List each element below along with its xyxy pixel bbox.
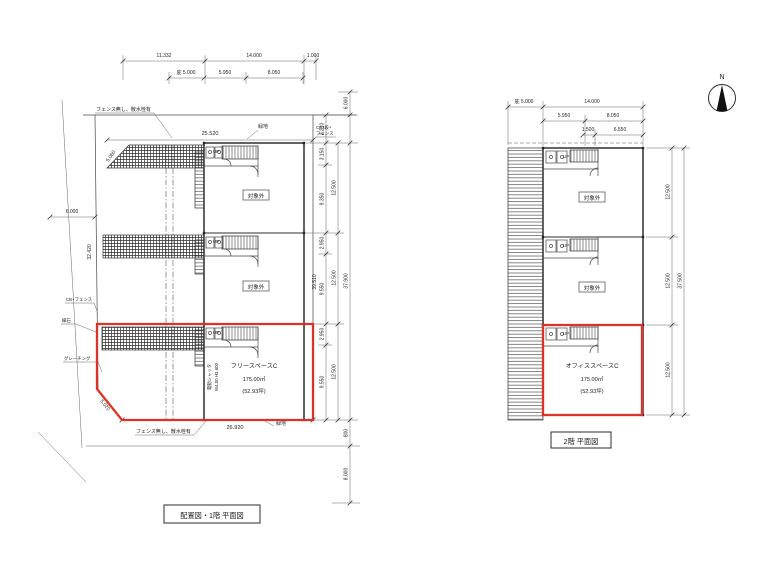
dim-label: 12.500 bbox=[332, 270, 338, 286]
shutter-opening-1 bbox=[195, 152, 204, 208]
stair-and-wc-block bbox=[543, 237, 598, 265]
stair-and-wc-block bbox=[543, 325, 598, 353]
column-marks bbox=[542, 147, 644, 416]
wall-length-label: 39.510 bbox=[312, 274, 318, 290]
excluded-room-label: 対象外 bbox=[584, 284, 601, 292]
plan1-caption-box: 配置図・1階 平面図 bbox=[164, 505, 260, 523]
balcony-strip-2f bbox=[508, 143, 643, 420]
site-south-dim-label: 26.920 bbox=[226, 425, 243, 431]
cb-fence-west-label: CB+フェンス bbox=[66, 297, 92, 303]
stair-up-label: UP bbox=[213, 149, 219, 154]
dim-label: 12.500 bbox=[666, 273, 672, 289]
dim-total-label: 37.900 bbox=[344, 273, 350, 289]
dims-east-2f: 12.500 12.500 12.500 37.500 bbox=[646, 146, 690, 418]
north-needle bbox=[717, 85, 728, 111]
dims-top-1f: 11.332 14.000 1.000 庇 5.000 5.950 8.050 bbox=[121, 53, 320, 84]
excluded-room-label: 対象外 bbox=[248, 192, 265, 200]
dim-label: 庇 5.000 bbox=[177, 69, 196, 76]
plan1-caption: 配置図・1階 平面図 bbox=[180, 511, 244, 520]
dim-label: 12.500 bbox=[666, 362, 672, 378]
dim-label: 6.550 bbox=[614, 127, 627, 133]
building-outline-2f bbox=[542, 147, 644, 416]
dim-label: 5.950 bbox=[558, 113, 571, 119]
excluded-room-label: 対象外 bbox=[248, 283, 265, 291]
unit-c-tsubo: (52.93坪) bbox=[242, 387, 265, 395]
north-arrow-icon: N bbox=[709, 72, 736, 112]
dim-label: 8.050 bbox=[268, 70, 281, 76]
dim-label: 800 bbox=[344, 429, 350, 438]
dim-label: 庇 5.000 bbox=[515, 98, 534, 105]
dim-label: 11.332 bbox=[157, 53, 172, 59]
dim-label: 12.500 bbox=[332, 180, 338, 196]
stair-up-label: UP bbox=[563, 154, 569, 159]
dim-label: 6.000 bbox=[344, 97, 350, 110]
stair-and-wc-block bbox=[204, 236, 258, 267]
stair-and-wc-block: UP bbox=[543, 148, 598, 176]
cb-fence-east-label: CB2段+ bbox=[316, 124, 332, 131]
dim-label: 6.000 bbox=[66, 209, 79, 215]
dim-total-label: 37.500 bbox=[678, 273, 684, 289]
dim-label: 5.950 bbox=[219, 70, 232, 76]
drawing-page: UP 対象外 対象外 フリースペースC 175.00㎡ (52.93坪) 電動シ… bbox=[0, 0, 760, 570]
unit-c-area: 175.00㎡ bbox=[243, 375, 266, 383]
dim-label: 2.950 bbox=[320, 237, 326, 250]
dim-label: 1.000 bbox=[307, 53, 320, 59]
plan2-caption-box: 2階 平面図 bbox=[551, 432, 611, 448]
second-floor-plan: UP 対象外 対象外 オフィススペースC 175.00㎡ (52.93坪) 庇 … bbox=[506, 98, 690, 448]
dim-label: 1.500 bbox=[582, 127, 595, 133]
fence-note-south: フェンス無し、散水栓有 bbox=[136, 428, 191, 435]
dim-label: 9.550 bbox=[320, 283, 326, 296]
room-labels-2f: 対象外 対象外 オフィススペースC 175.00㎡ (52.93坪) bbox=[565, 192, 619, 395]
fence-note-north: フェンス無し、散水栓有 bbox=[96, 106, 151, 113]
dims-east-1f: 3.150 9.350 2.950 9.550 2.950 9.550 12.5… bbox=[306, 90, 358, 506]
shutter-label: 電動シャッタ bbox=[206, 364, 213, 390]
shutter-opening-2 bbox=[195, 240, 204, 274]
excluded-room-label: 対象外 bbox=[584, 194, 601, 202]
dims-top-2f: 庇 5.000 14.000 5.950 8.050 1.500 6.550 bbox=[506, 98, 646, 146]
north-label: N bbox=[719, 72, 724, 81]
dim-label: 12.500 bbox=[332, 364, 338, 380]
dim-label: 32.420 bbox=[87, 244, 93, 260]
shutter-opening-3 bbox=[195, 330, 204, 366]
dim-label: 8.050 bbox=[607, 113, 620, 119]
dim-label: 3.150 bbox=[320, 148, 326, 161]
shutter-size-label: W4.00 H3.600 bbox=[214, 362, 219, 391]
dims-west-south-1f: 6.000 32.420 5.020 5.060 26.920 bbox=[48, 149, 316, 431]
plan2-caption: 2階 平面図 bbox=[564, 437, 599, 446]
floor-plan-drawing: UP 対象外 対象外 フリースペースC 175.00㎡ (52.93坪) 電動シ… bbox=[0, 0, 760, 570]
grating-label: グレーチング bbox=[64, 355, 91, 362]
unit-c-tsubo: (52.93坪) bbox=[580, 387, 603, 395]
room-labels-1f: 対象外 対象外 フリースペースC 175.00㎡ (52.93坪) 電動シャッタ… bbox=[206, 190, 278, 395]
dim-label: 2.950 bbox=[320, 328, 326, 341]
unit-c-name: フリースペースC bbox=[231, 363, 278, 370]
site-and-first-floor-plan: UP 対象外 対象外 フリースペースC 175.00㎡ (52.93坪) 電動シ… bbox=[38, 53, 360, 523]
dim-label: 8.000 bbox=[344, 468, 350, 481]
stair-and-wc-block: UP bbox=[204, 146, 258, 177]
curb-label: 縁石 bbox=[62, 317, 71, 324]
green-strip-label-north: 緑地 bbox=[258, 123, 268, 130]
dim-label: 12.500 bbox=[666, 184, 672, 200]
dim-label: 14.000 bbox=[246, 53, 262, 59]
dim-label: 9.550 bbox=[320, 376, 326, 389]
stair-and-wc-block bbox=[204, 327, 258, 358]
unit-c-name: オフィススペースC bbox=[565, 363, 619, 370]
dim-label: 9.350 bbox=[320, 193, 326, 206]
site-north-dim-label: 25.520 bbox=[201, 131, 218, 137]
dim-label: 14.000 bbox=[584, 99, 600, 105]
unit-c-area: 175.00㎡ bbox=[581, 375, 604, 383]
canopy-hatch-strips bbox=[102, 145, 204, 366]
